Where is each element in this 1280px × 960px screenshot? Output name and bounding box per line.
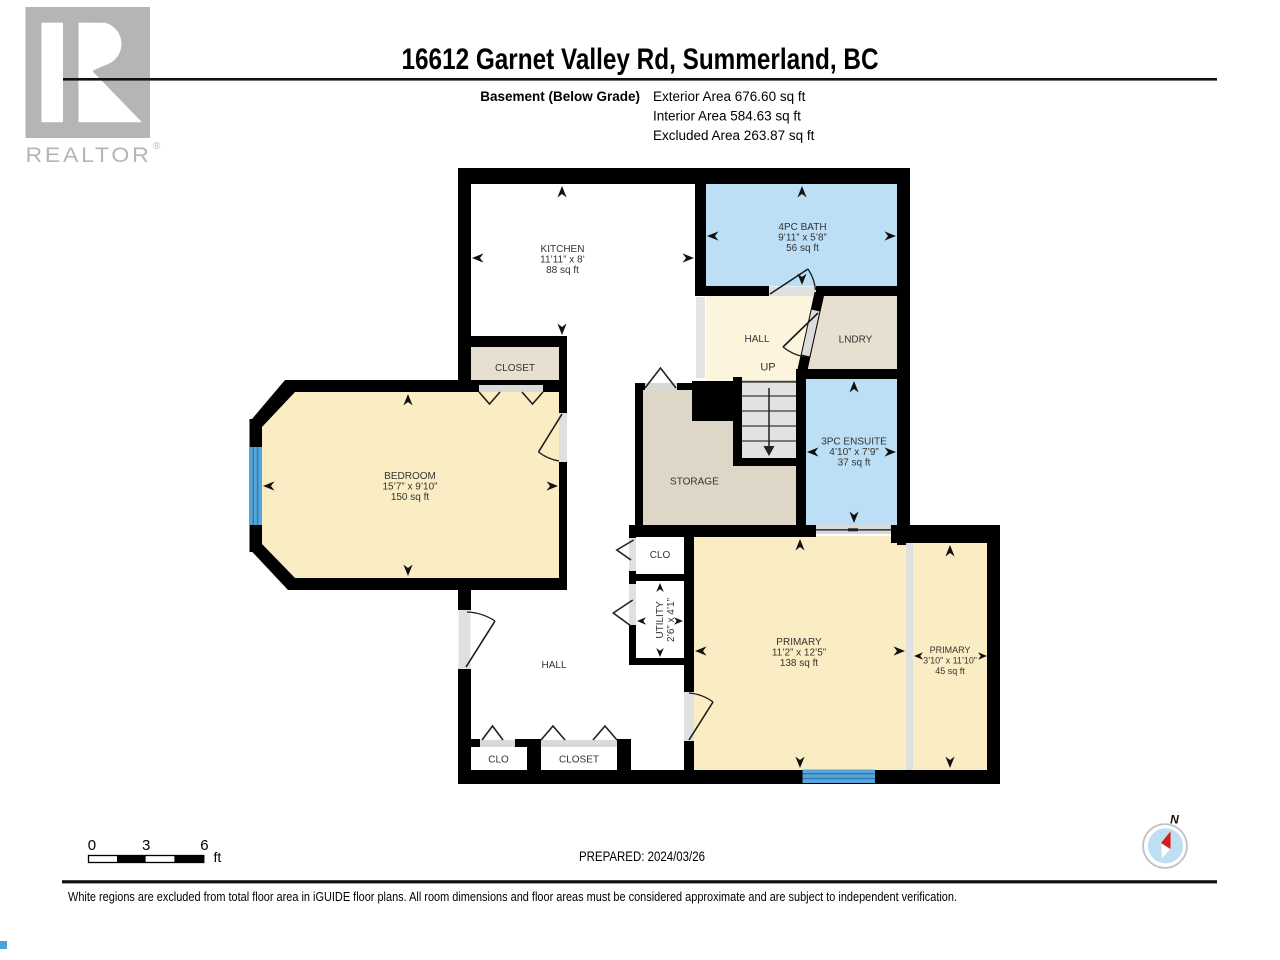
svg-text:3’10” x 11’10”: 3’10” x 11’10” xyxy=(923,656,977,666)
svg-text:PRIMARY: PRIMARY xyxy=(776,637,822,648)
svg-text:UP: UP xyxy=(760,362,775,374)
svg-text:STORAGE: STORAGE xyxy=(670,477,719,488)
svg-text:4’10” x 7’9”: 4’10” x 7’9” xyxy=(829,447,878,458)
svg-text:CLO: CLO xyxy=(650,550,671,561)
svg-text:CLOSET: CLOSET xyxy=(559,755,599,766)
svg-text:4PC BATH: 4PC BATH xyxy=(778,222,826,233)
svg-text:HALL: HALL xyxy=(744,334,769,345)
svg-text:6: 6 xyxy=(200,837,208,854)
svg-text:CLOSET: CLOSET xyxy=(495,363,535,374)
svg-text:PREPARED: 2024/03/26: PREPARED: 2024/03/26 xyxy=(579,848,705,864)
svg-text:56 sq ft: 56 sq ft xyxy=(786,243,819,254)
svg-text:KITCHEN: KITCHEN xyxy=(541,244,585,255)
svg-text:9’11” x 5’8”: 9’11” x 5’8” xyxy=(778,233,827,244)
svg-text:3PC ENSUITE: 3PC ENSUITE xyxy=(821,437,887,448)
svg-text:11’2” x 12’5”: 11’2” x 12’5” xyxy=(772,648,826,659)
svg-text:Interior Area 584.63 sq ft: Interior Area 584.63 sq ft xyxy=(653,109,801,124)
svg-text:15’7” x 9’10”: 15’7” x 9’10” xyxy=(382,482,437,493)
svg-text:2’6” x 4’1”: 2’6” x 4’1” xyxy=(666,598,677,642)
svg-text:UTILITY: UTILITY xyxy=(655,601,666,639)
svg-text:PRIMARY: PRIMARY xyxy=(930,645,971,655)
svg-text:White regions are excluded fro: White regions are excluded from total fl… xyxy=(68,889,957,904)
svg-text:45 sq ft: 45 sq ft xyxy=(935,666,965,676)
svg-text:CLO: CLO xyxy=(488,755,509,766)
svg-text:ft: ft xyxy=(214,849,222,865)
svg-text:11’11” x 8’: 11’11” x 8’ xyxy=(540,255,585,266)
svg-text:3: 3 xyxy=(142,837,150,854)
svg-text:0: 0 xyxy=(88,837,96,854)
svg-text:138 sq ft: 138 sq ft xyxy=(780,658,819,669)
svg-text:Excluded Area 263.87 sq ft: Excluded Area 263.87 sq ft xyxy=(653,128,815,143)
svg-text:®: ® xyxy=(153,141,161,152)
svg-text:LNDRY: LNDRY xyxy=(839,335,873,346)
svg-text:88 sq ft: 88 sq ft xyxy=(546,265,579,276)
svg-text:16612 Garnet Valley Rd, Summer: 16612 Garnet Valley Rd, Summerland, BC xyxy=(402,43,879,76)
svg-text:Basement (Below Grade): Basement (Below Grade) xyxy=(480,89,640,104)
svg-text:150 sq ft: 150 sq ft xyxy=(391,492,430,503)
svg-text:BEDROOM: BEDROOM xyxy=(384,471,436,482)
svg-text:HALL: HALL xyxy=(541,660,566,671)
svg-text:Exterior Area 676.60 sq ft: Exterior Area 676.60 sq ft xyxy=(653,89,806,104)
svg-text:REALTOR: REALTOR xyxy=(26,144,152,167)
svg-text:37 sq ft: 37 sq ft xyxy=(838,458,871,469)
